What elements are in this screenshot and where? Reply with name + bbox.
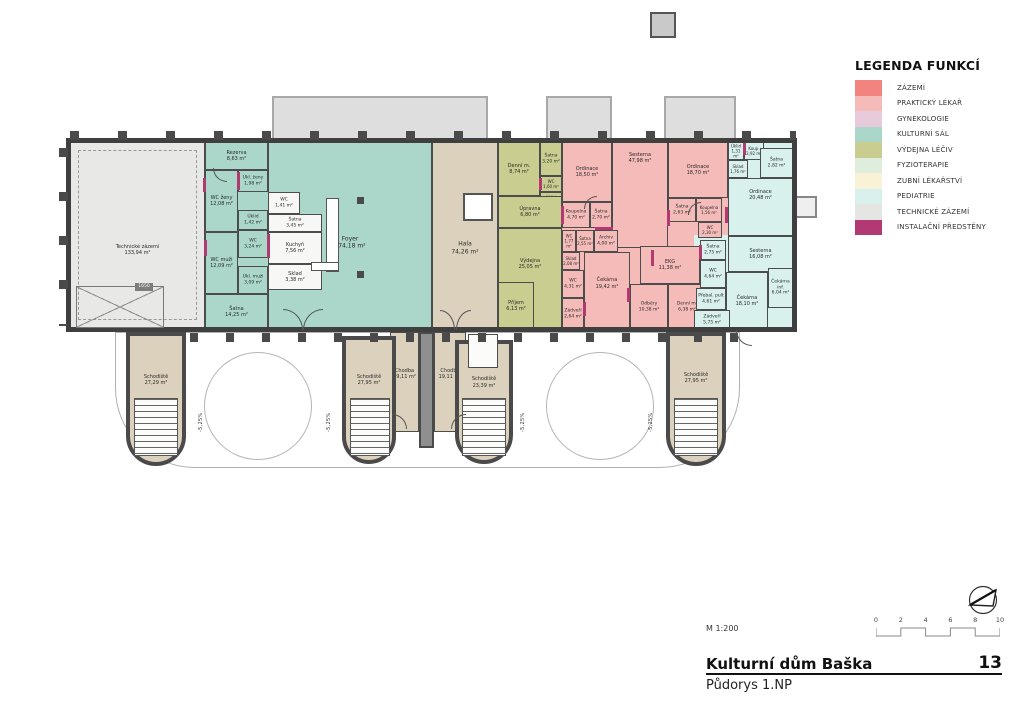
scale-tick: 2 bbox=[899, 616, 903, 624]
installation-wall bbox=[237, 172, 240, 190]
scale-label: M 1:200 bbox=[706, 624, 739, 633]
legend-item-zubni_lekarstvi: ZUBNÍ LÉKAŘSTVÍ bbox=[855, 173, 1020, 189]
door-width-annotation: 1650 bbox=[135, 283, 153, 291]
colonnade bbox=[190, 333, 738, 342]
installation-wall bbox=[651, 250, 654, 266]
legend-item-label: KULTURNÍ SÁL bbox=[897, 130, 949, 138]
room-label: Schodiště27,29 m² bbox=[131, 374, 182, 387]
room-label-text: Schodiště bbox=[131, 374, 182, 380]
installation-wall bbox=[627, 288, 630, 302]
foyer-counter bbox=[326, 198, 339, 272]
top-pilasters bbox=[70, 131, 796, 140]
column bbox=[357, 197, 364, 204]
legend-item-label: TECHNICKÉ ZÁZEMÍ bbox=[897, 208, 969, 216]
title-row: Kulturní dům Baška 13 bbox=[706, 650, 1002, 675]
legend: LEGENDA FUNKCÍ ZÁZEMÍPRAKTICKÝ LÉKAŘGYNE… bbox=[855, 58, 1020, 235]
legend-item-gynekologie: GYNEKOLOGIE bbox=[855, 111, 1020, 127]
legend-item-label: VÝDEJNA LÉČIV bbox=[897, 146, 953, 154]
legend-swatch-vydejna_leciv bbox=[855, 142, 882, 158]
scale-tick: 0 bbox=[874, 616, 878, 624]
room-label: Schodiště27,95 m² bbox=[671, 371, 722, 384]
room-label-text: Schodiště bbox=[671, 371, 722, 377]
core-spine bbox=[419, 332, 434, 448]
legend-item-fyzioterapie: FYZIOTERAPIE bbox=[855, 158, 1020, 174]
installation-wall bbox=[561, 206, 564, 224]
scale-tick: 4 bbox=[924, 616, 928, 624]
legend-swatch-kulturni_sal bbox=[855, 127, 882, 143]
legend-swatch-pediatrie bbox=[855, 189, 882, 205]
scale-bar-graphic bbox=[876, 627, 1000, 637]
legend-item-instalacni_predsteny: INSTALAČNÍ PŘEDSTĚNY bbox=[855, 220, 1020, 236]
legend-items: ZÁZEMÍPRAKTICKÝ LÉKAŘGYNEKOLOGIEKULTURNÍ… bbox=[855, 80, 1020, 235]
legend-item-prakticky_lekar: PRAKTICKÝ LÉKAŘ bbox=[855, 96, 1020, 112]
side-porch bbox=[795, 196, 817, 218]
legend-swatch-gynekologie bbox=[855, 111, 882, 127]
room-label-text: 27,29 m² bbox=[131, 380, 182, 386]
room-label-text: 23,39 m² bbox=[460, 382, 509, 388]
installation-wall bbox=[725, 207, 728, 223]
room-label-text: Schodiště bbox=[346, 373, 391, 379]
scale-tick: 6 bbox=[948, 616, 952, 624]
legend-item-label: PEDIATRIE bbox=[897, 192, 935, 200]
room-label: Schodiště23,39 m² bbox=[460, 376, 509, 389]
legend-item-label: GYNEKOLOGIE bbox=[897, 115, 949, 123]
legend-swatch-instalacni_predsteny bbox=[855, 220, 882, 236]
legend-item-zazemi: ZÁZEMÍ bbox=[855, 80, 1020, 96]
stair-flight bbox=[350, 398, 390, 456]
room-label-text: Schodiště bbox=[460, 376, 509, 382]
legend-item-label: FYZIOTERAPIE bbox=[897, 161, 949, 169]
project-title: Kulturní dům Baška bbox=[706, 655, 872, 673]
room-label: Schodiště27,95 m² bbox=[346, 373, 391, 386]
legend-title: LEGENDA FUNKCÍ bbox=[855, 58, 1020, 73]
legend-swatch-zubni_lekarstvi bbox=[855, 173, 882, 189]
elevator bbox=[463, 193, 493, 221]
ramp-slope-label: -5,25% bbox=[198, 386, 210, 432]
rooftop-box bbox=[650, 12, 676, 38]
legend-swatch-prakticky_lekar bbox=[855, 96, 882, 112]
legend-item-vydejna_leciv: VÝDEJNA LÉČIV bbox=[855, 142, 1020, 158]
north-arrow-icon bbox=[962, 584, 1002, 622]
legend-swatch-fyzioterapie bbox=[855, 158, 882, 174]
installation-wall bbox=[204, 240, 207, 256]
installation-wall bbox=[539, 178, 542, 190]
left-pilasters bbox=[59, 148, 68, 326]
drawing-title: Půdorys 1.NP bbox=[706, 678, 792, 693]
stair-flight bbox=[134, 398, 178, 456]
plaza-circle bbox=[204, 352, 312, 460]
ramp-slope-label: -5,25% bbox=[326, 386, 338, 432]
legend-swatch-zazemi bbox=[855, 80, 882, 96]
installation-wall bbox=[667, 210, 670, 226]
ramp-slope-label: -5,25% bbox=[648, 386, 660, 432]
stair-flight bbox=[674, 398, 718, 456]
foyer-counter bbox=[311, 262, 339, 271]
legend-item-kulturni_sal: KULTURNÍ SÁL bbox=[855, 127, 1020, 143]
legend-item-label: ZÁZEMÍ bbox=[897, 84, 925, 92]
installation-wall bbox=[583, 302, 586, 316]
plaza-circle bbox=[546, 352, 654, 460]
room-label-text: 27,95 m² bbox=[346, 380, 391, 386]
legend-item-technicke_zazemi: TECHNICKÉ ZÁZEMÍ bbox=[855, 204, 1020, 220]
installation-wall bbox=[595, 227, 613, 230]
sheet-number: 13 bbox=[978, 653, 1002, 673]
stair-flight bbox=[462, 398, 506, 456]
installation-wall bbox=[699, 245, 702, 259]
installation-wall bbox=[267, 234, 270, 258]
hatched-area bbox=[76, 286, 164, 328]
installation-wall bbox=[743, 143, 746, 155]
legend-swatch-technicke_zazemi bbox=[855, 204, 882, 220]
legend-item-label: INSTALAČNÍ PŘEDSTĚNY bbox=[897, 223, 986, 231]
legend-item-label: PRAKTICKÝ LÉKAŘ bbox=[897, 99, 962, 107]
legend-item-label: ZUBNÍ LÉKAŘSTVÍ bbox=[897, 177, 962, 185]
installation-wall bbox=[203, 178, 206, 192]
ramp-slope-label: -5,25% bbox=[520, 386, 532, 432]
drawing-sheet: Technické zázemí133,94 m²Rezerva8,63 m²W… bbox=[0, 0, 1024, 724]
room-label-text: 27,95 m² bbox=[671, 378, 722, 384]
column bbox=[357, 271, 364, 278]
legend-item-pediatrie: PEDIATRIE bbox=[855, 189, 1020, 205]
